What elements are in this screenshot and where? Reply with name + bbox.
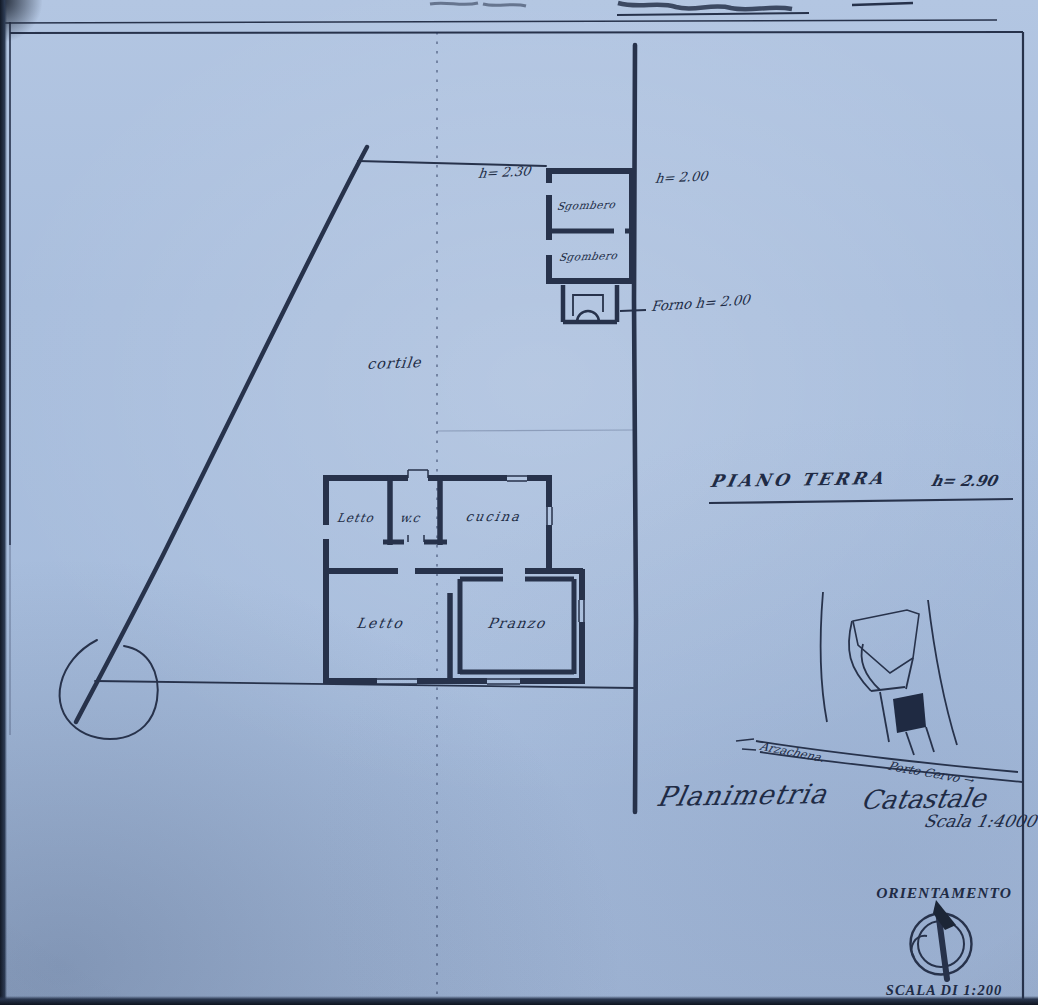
photo-left-edge [0, 0, 7, 1005]
floor-height: h= 2.90 [930, 474, 998, 489]
sgombero-building [546, 168, 634, 284]
orientation-title: ORIENTAMENTO [873, 885, 1015, 901]
room-label-sgombero-1: Sgombero [556, 199, 616, 212]
map-caption-catastale: Catastale [859, 785, 988, 813]
cadastral-plan-scan: h= 2.30 h= 2.00 Sgombero Sgombero Forno … [0, 0, 1038, 1005]
subject-parcel-highlight [893, 693, 926, 733]
map-caption-planimetria: Planimetria [655, 780, 830, 810]
parcel-boundary-lines [60, 45, 636, 812]
room-label-sgombero-2: Sgombero [558, 250, 618, 263]
map-scale-note: Scala 1:4000 [922, 813, 1038, 830]
floor-title: PIANO TERRA [709, 470, 888, 490]
room-label-wc: w.c [399, 512, 421, 524]
compass-icon [911, 900, 972, 979]
cortile-label: cortile [366, 355, 422, 371]
room-label-pranzo: Pranzo [487, 616, 548, 630]
height-note-right: h= 2.00 [654, 169, 708, 185]
main-house-plan [323, 470, 584, 684]
piano-terra-underline [709, 499, 1013, 503]
room-label-letto-large: Letto [356, 616, 406, 630]
photo-bottom-edge [0, 996, 1038, 1005]
plan-drawing [0, 0, 1038, 1005]
height-note-left: h= 2.30 [477, 164, 531, 180]
room-label-letto-small: Letto [336, 512, 375, 524]
header-scribble [430, 3, 913, 15]
room-label-cucina: cucina [465, 510, 523, 523]
